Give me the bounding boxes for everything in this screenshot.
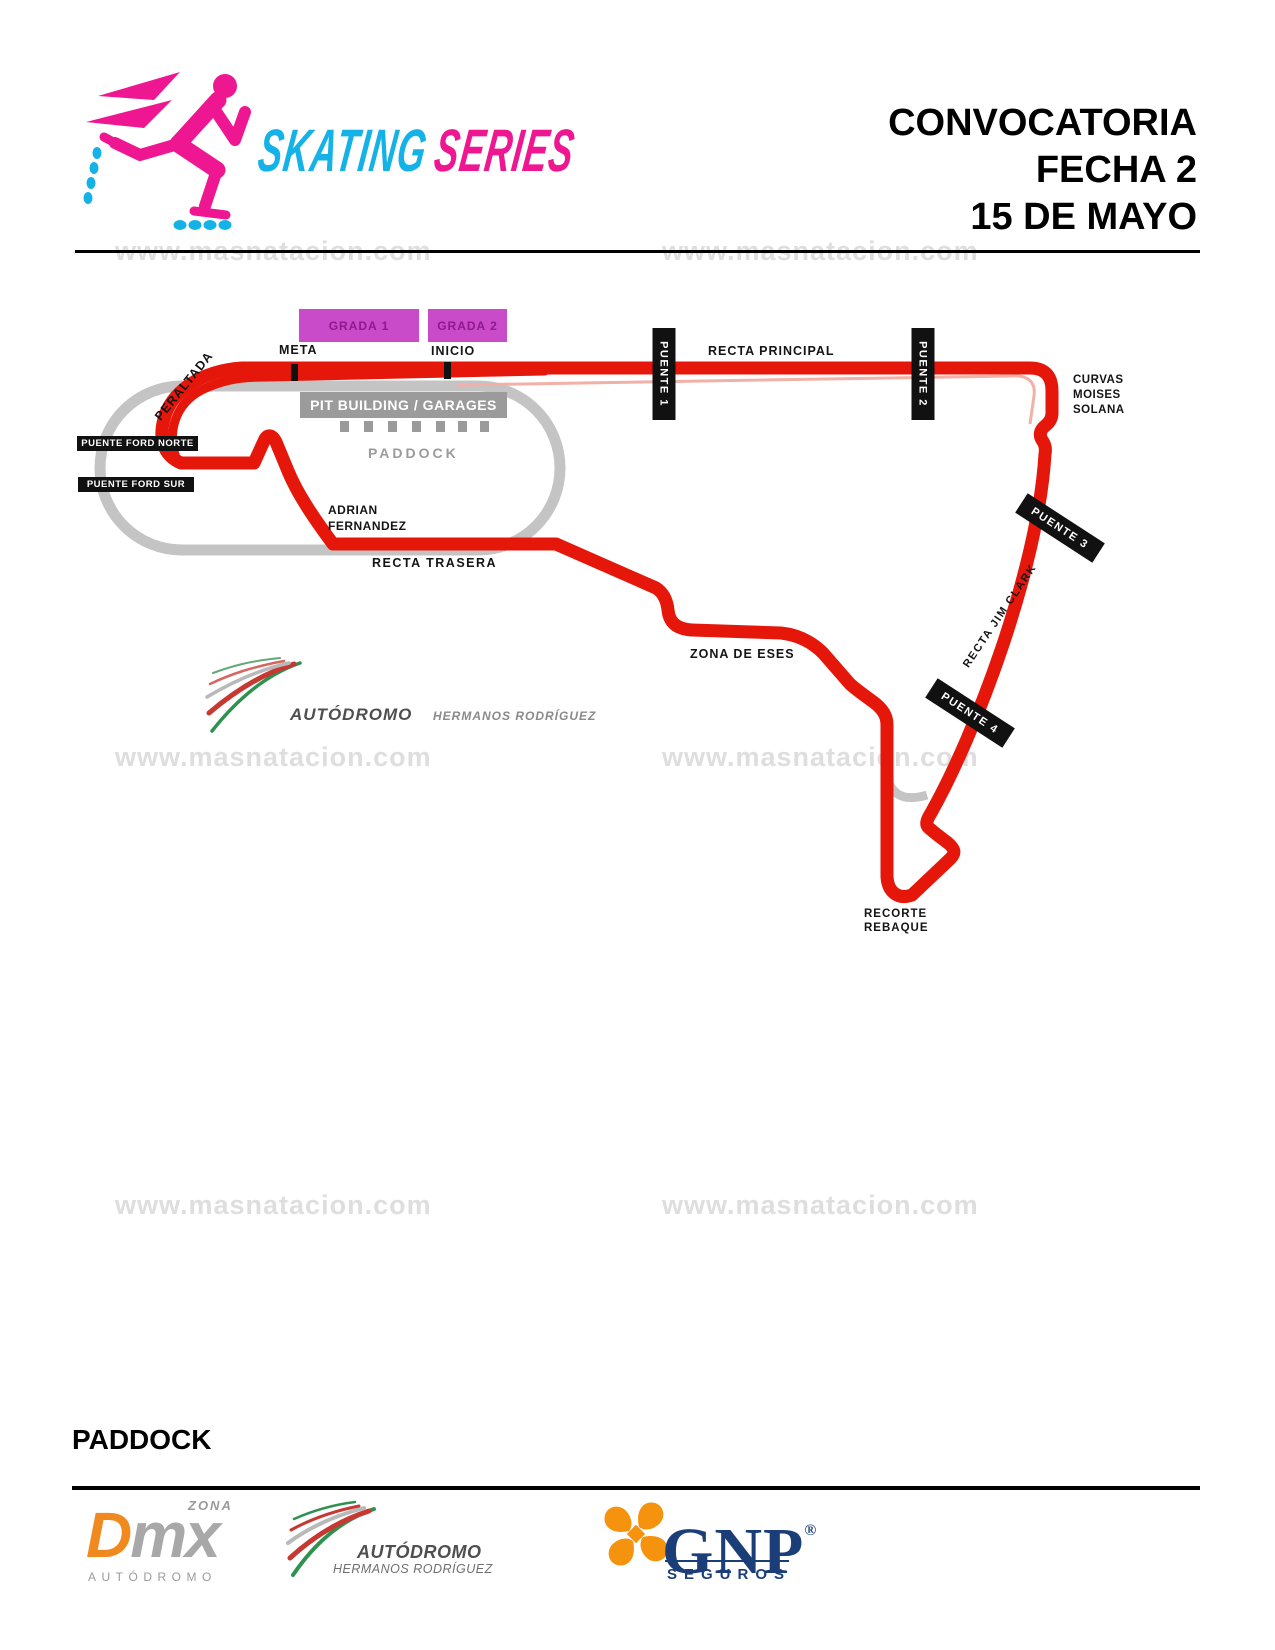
footer-divider: [72, 1486, 1200, 1490]
dmx-mx: mx: [130, 1499, 219, 1571]
garage-stalls: [340, 421, 489, 432]
recorte-line2: REBAQUE: [864, 921, 929, 935]
puente-2-label: PUENTE 2: [912, 328, 935, 420]
main-track-path: [162, 368, 1052, 896]
brand-skating: SKATING: [254, 117, 431, 184]
dmx-autodromo-text: AUTÓDROMO: [88, 1570, 217, 1584]
puente-ford-norte-label: PUENTE FORD NORTE: [77, 436, 198, 451]
map-ahr-swoosh-icon: [207, 658, 300, 731]
map-ahr-autodromo-text: AUTÓDROMO: [290, 705, 412, 725]
gnp-registered-mark: ®: [804, 1522, 817, 1539]
adrian-line1: ADRIAN: [328, 502, 407, 518]
inicio-label: INICIO: [431, 344, 475, 358]
puente-ford-sur-label: PUENTE FORD SUR: [78, 477, 194, 492]
recorte-line1: RECORTE: [864, 907, 929, 921]
brand-series: SERIES: [431, 117, 580, 184]
curvas-line1: CURVAS: [1073, 373, 1125, 388]
track-map: [0, 0, 1275, 1650]
map-ahr-hermanos-text: HERMANOS RODRÍGUEZ: [433, 709, 596, 723]
dmx-logo: ZONA Dmx AUTÓDROMO: [86, 1496, 236, 1586]
footer-ahr-autodromo-text: AUTÓDROMO: [357, 1542, 482, 1563]
gnp-seguros-text: SEGUROS: [667, 1566, 791, 1583]
puente-1-label: PUENTE 1: [653, 328, 676, 420]
grandstand-2-label: GRADA 2: [428, 309, 507, 342]
dmx-wordmark: Dmx: [86, 1504, 219, 1566]
curvas-line3: SOLANA: [1073, 403, 1125, 418]
recorte-rebaque-label: RECORTE REBAQUE: [864, 907, 929, 935]
curvas-moises-solana-label: CURVAS MOISES SOLANA: [1073, 373, 1125, 418]
document-title: CONVOCATORIA FECHA 2 15 DE MAYO: [888, 100, 1197, 241]
gnp-pinwheel-icon: [604, 1502, 667, 1565]
meta-line-marker: [291, 364, 298, 381]
recta-trasera-label: RECTA TRASERA: [372, 556, 497, 570]
title-line-2: FECHA 2: [888, 147, 1197, 194]
zona-de-eses-label: ZONA DE ESES: [690, 647, 795, 661]
footer-ahr-hermanos-text: HERMANOS RODRÍGUEZ: [333, 1562, 493, 1576]
meta-label: META: [279, 343, 318, 357]
gnp-underline: [665, 1560, 789, 1562]
convocatoria-page: SKATINGSERIES CONVOCATORIA FECHA 2 15 DE…: [0, 0, 1275, 1650]
dmx-d: D: [86, 1499, 130, 1571]
title-line-1: CONVOCATORIA: [888, 100, 1197, 147]
inicio-line-marker: [444, 362, 451, 379]
pit-building-label: PIT BUILDING / GARAGES: [300, 392, 507, 418]
recta-principal-label: RECTA PRINCIPAL: [708, 344, 835, 358]
curvas-line2: MOISES: [1073, 388, 1125, 403]
brand-wordmark: SKATINGSERIES: [254, 116, 579, 185]
paddock-map-label: PADDOCK: [368, 445, 459, 461]
title-line-3: 15 DE MAYO: [888, 194, 1197, 241]
grandstand-1-label: GRADA 1: [299, 309, 419, 342]
adrian-line2: FERNANDEZ: [328, 518, 407, 534]
header-divider: [75, 250, 1200, 253]
adrian-fernandez-label: ADRIAN FERNANDEZ: [328, 502, 407, 534]
paddock-section-heading: PADDOCK: [72, 1424, 211, 1456]
